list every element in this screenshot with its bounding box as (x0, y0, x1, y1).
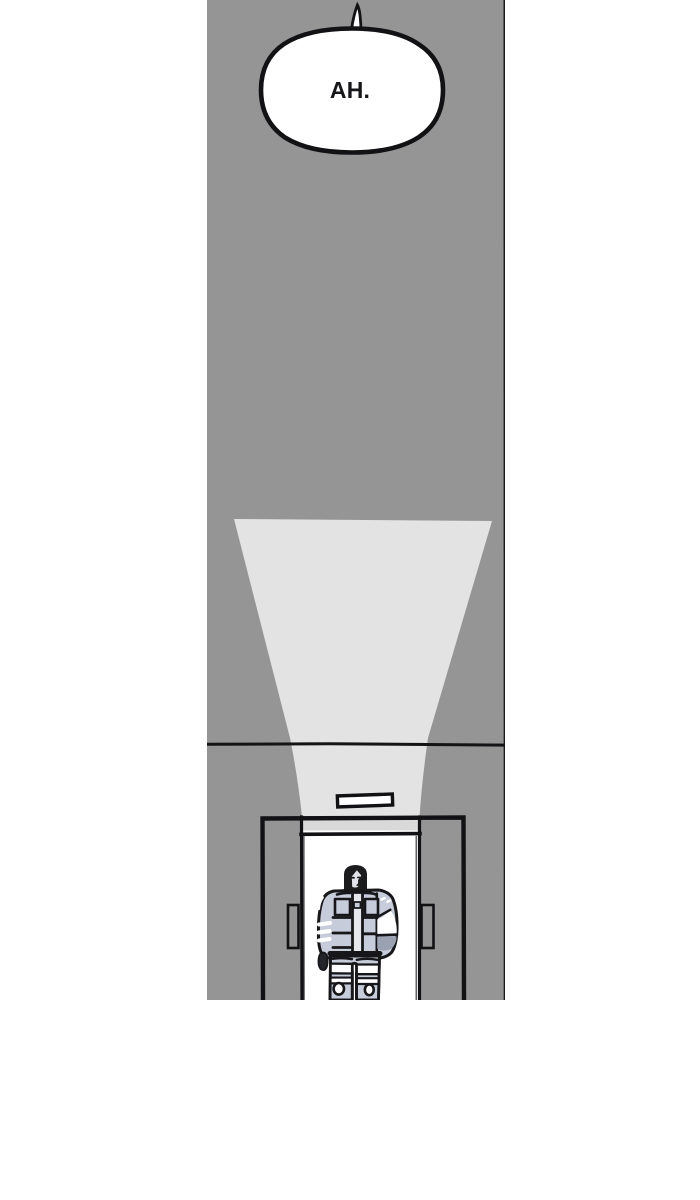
svg-text:AH.: AH. (330, 77, 370, 103)
